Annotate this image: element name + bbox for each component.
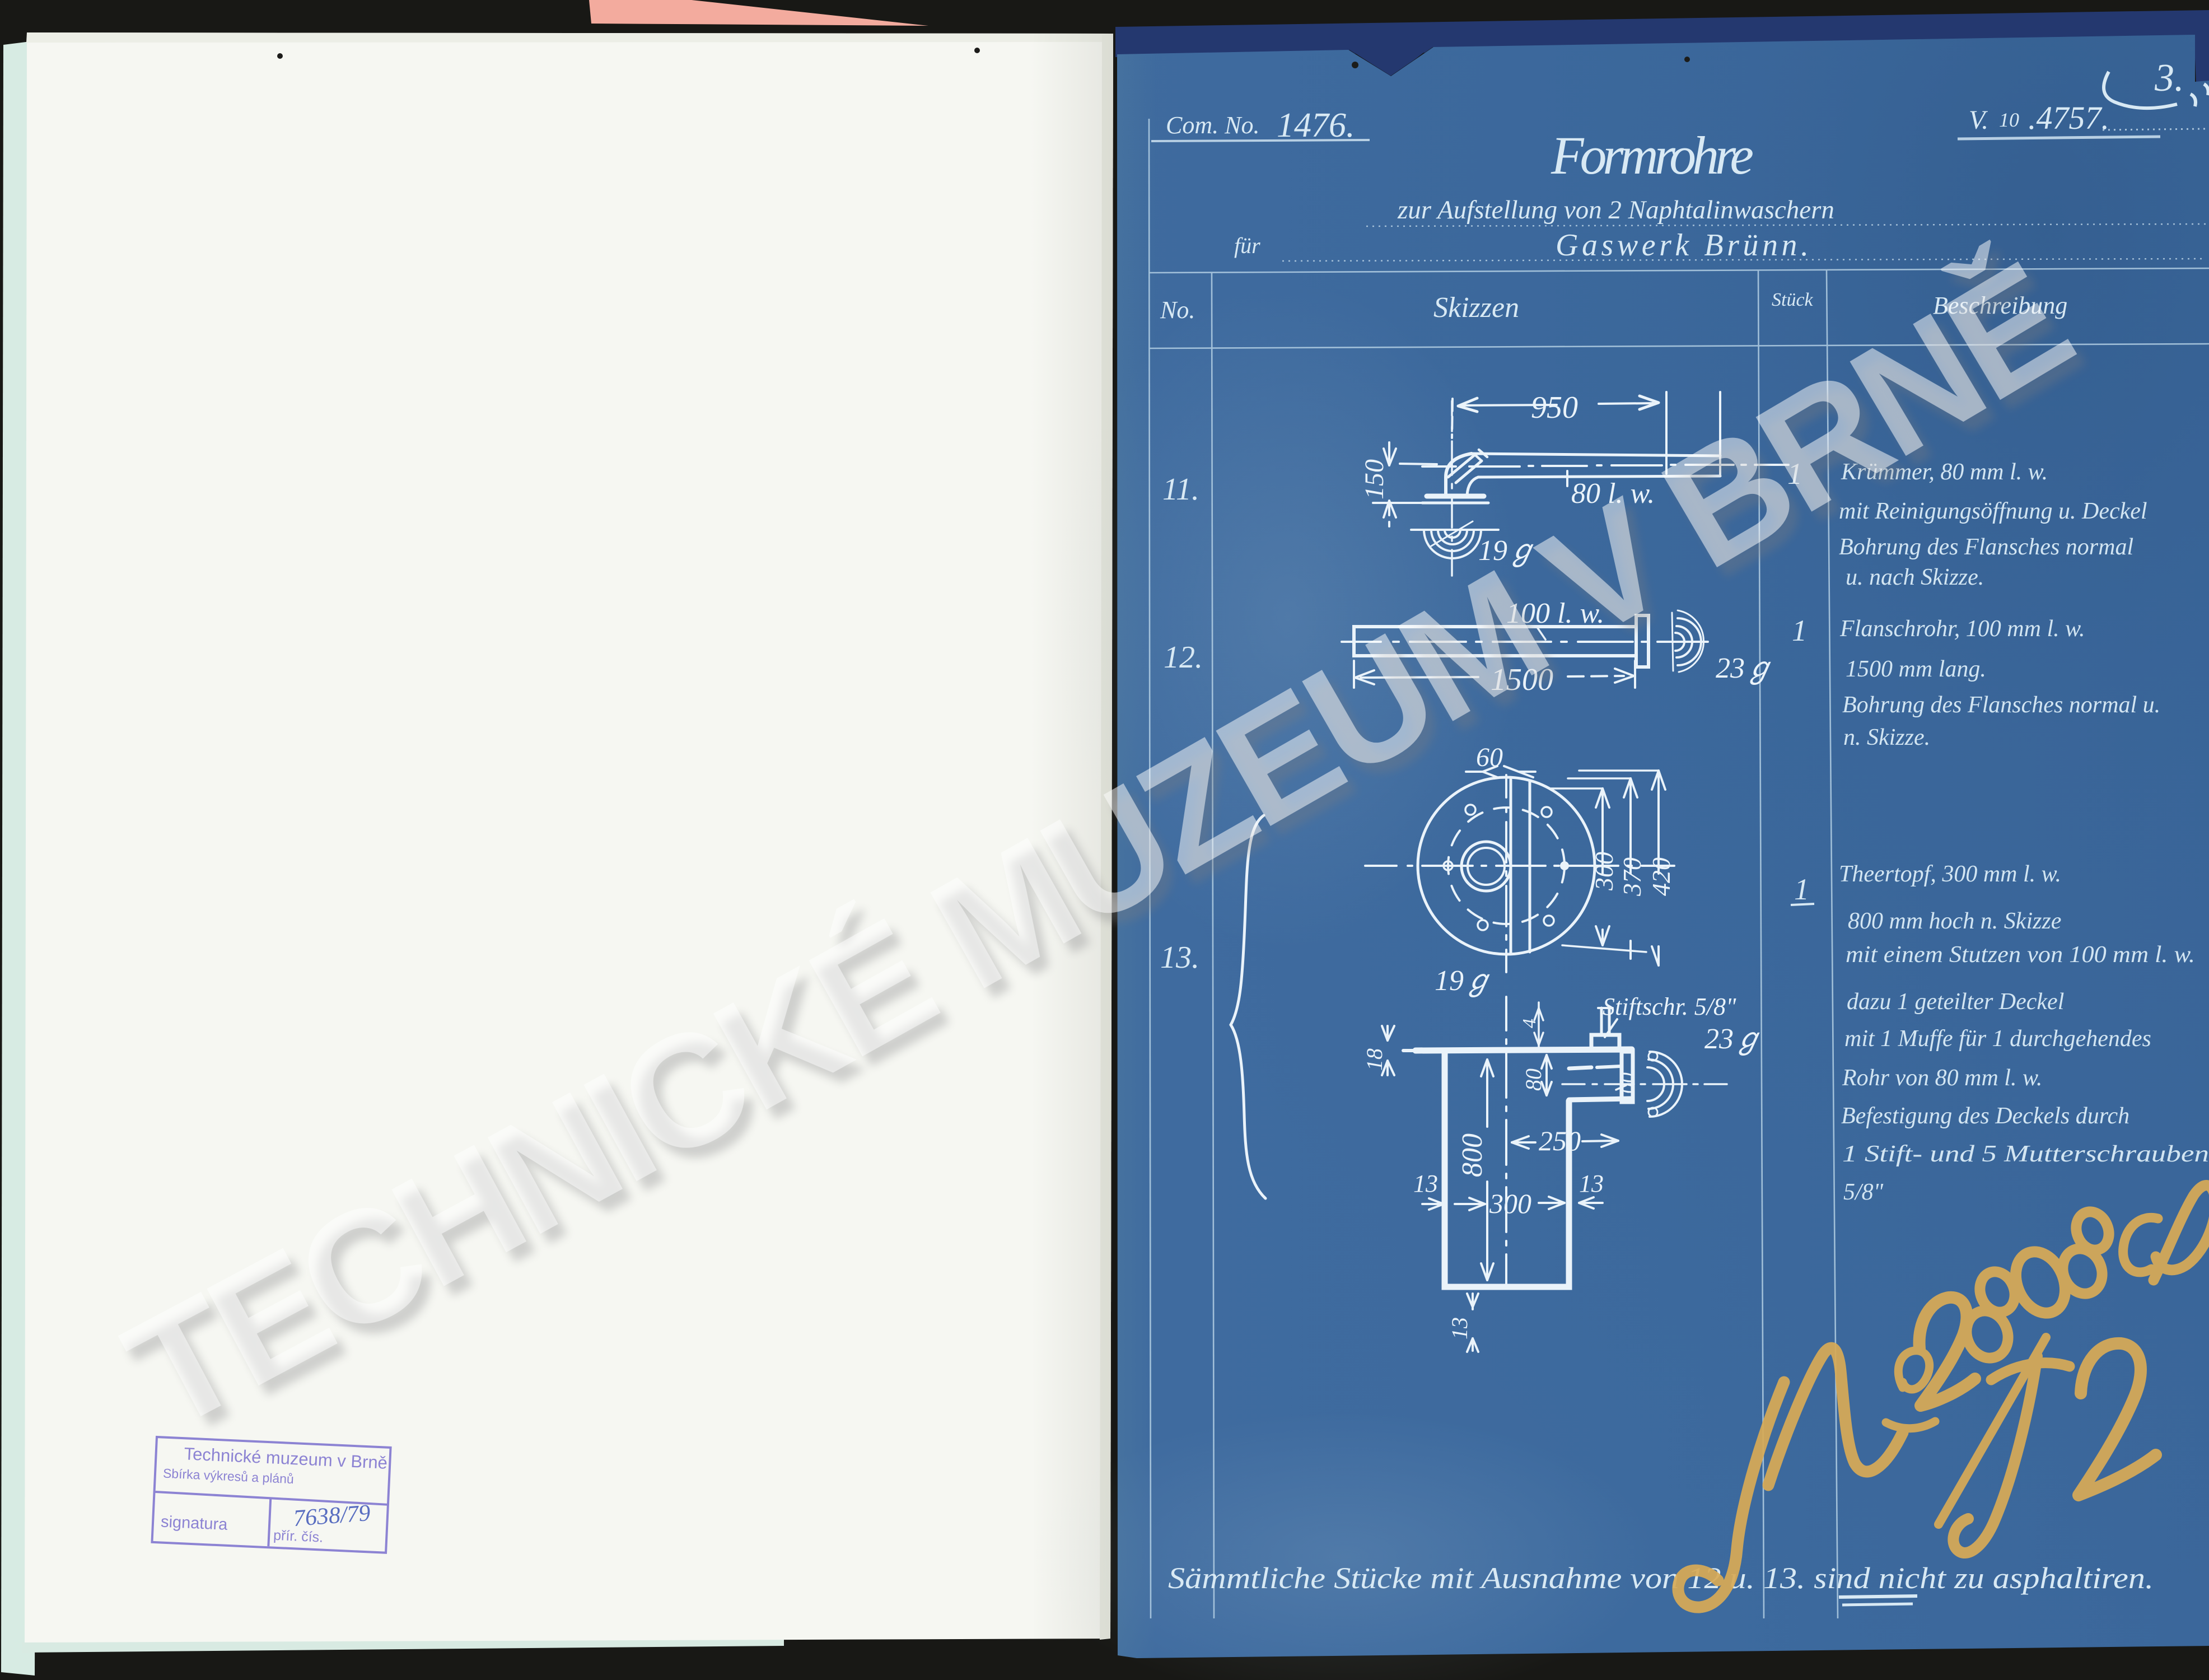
svg-text:800: 800 [1456, 1133, 1488, 1177]
svg-text:3.: 3. [2154, 57, 2184, 100]
svg-text:19ℊ: 19ℊ [1435, 965, 1493, 997]
svg-text:1: 1 [1794, 872, 1809, 906]
svg-text:1500 mm lang.: 1500 mm lang. [1846, 656, 1986, 682]
svg-text:420: 420 [1647, 857, 1675, 896]
svg-text:150: 150 [1360, 459, 1389, 500]
svg-text:1476.: 1476. [1277, 106, 1355, 144]
svg-text:mit 1 Muffe für 1 durchgehende: mit 1 Muffe für 1 durchgehendes [1844, 1026, 2151, 1052]
svg-text:signatura: signatura [160, 1513, 228, 1533]
svg-text:23ℊ: 23ℊ [1716, 652, 1774, 685]
svg-text:1: 1 [1792, 614, 1807, 647]
svg-text:Rohr von 80 mm l. w.: Rohr von 80 mm l. w. [1842, 1065, 2042, 1091]
svg-text:.4757.: .4757. [2028, 100, 2109, 136]
svg-text:1 Stift- und 5 Mutterschrauben: 1 Stift- und 5 Mutterschrauben [1842, 1141, 2209, 1167]
svg-text:4: 4 [1519, 1019, 1540, 1028]
svg-text:800 mm hoch n. Skizze: 800 mm hoch n. Skizze [1848, 908, 2061, 934]
svg-text:13: 13 [1447, 1317, 1472, 1340]
svg-text:Stück: Stück [1772, 290, 1814, 310]
svg-text:Gaswerk Brünn.: Gaswerk Brünn. [1556, 228, 1809, 263]
svg-text:10: 10 [1999, 109, 2019, 131]
svg-text:mit einem Stutzen von 100 mm l: mit einem Stutzen von 100 mm l. w. [1846, 942, 2195, 968]
svg-text:12.: 12. [1164, 640, 1203, 675]
svg-text:Com. No.: Com. No. [1166, 111, 1259, 139]
svg-text:370: 370 [1618, 857, 1646, 897]
svg-text:250: 250 [1539, 1125, 1581, 1156]
svg-text:80: 80 [1521, 1068, 1546, 1091]
svg-text:Bohrung des Flansches normal: Bohrung des Flansches normal [1839, 534, 2133, 560]
svg-text:23ℊ: 23ℊ [1704, 1023, 1763, 1056]
svg-text:13.: 13. [1160, 940, 1199, 975]
svg-text:Sämmtliche Stücke mit Ausnahme: Sämmtliche Stücke mit Ausnahme von 12 u.… [1168, 1561, 2154, 1595]
svg-text:Stiftschr. 5/8": Stiftschr. 5/8" [1603, 993, 1736, 1020]
svg-text:zur Aufstellung von 2 Naphtali: zur Aufstellung von 2 Naphtalinwaschern [1397, 195, 1834, 225]
svg-text:13: 13 [1579, 1170, 1604, 1197]
svg-text:300: 300 [1489, 1188, 1531, 1219]
svg-text:300: 300 [1590, 852, 1618, 891]
svg-text:Befestigung des Deckels durch: Befestigung des Deckels durch [1841, 1103, 2129, 1129]
svg-text:No.: No. [1160, 296, 1195, 324]
svg-text:Formrohre: Formrohre [1550, 125, 1754, 185]
svg-text:dazu 1 geteilter Deckel: dazu 1 geteilter Deckel [1847, 989, 2064, 1015]
svg-text:n. Skizze.: n. Skizze. [1843, 725, 1930, 750]
svg-text:Theertopf, 300 mm l. w.: Theertopf, 300 mm l. w. [1839, 861, 2061, 887]
svg-text:950: 950 [1531, 390, 1578, 425]
svg-text:18: 18 [1362, 1048, 1387, 1071]
svg-text:Flanschrohr, 100 mm l. w.: Flanschrohr, 100 mm l. w. [1839, 616, 2085, 642]
svg-text:13: 13 [1413, 1170, 1438, 1197]
svg-text:V.: V. [1969, 105, 1988, 135]
svg-text:für: für [1234, 233, 1260, 258]
svg-text:Skizzen: Skizzen [1433, 292, 1519, 324]
svg-text:11.: 11. [1162, 472, 1199, 507]
svg-text:5/8": 5/8" [1843, 1179, 1884, 1205]
svg-text:u. nach Skizze.: u. nach Skizze. [1846, 564, 1984, 590]
svg-text:Bohrung des Flansches normal u: Bohrung des Flansches normal u. [1842, 692, 2160, 718]
